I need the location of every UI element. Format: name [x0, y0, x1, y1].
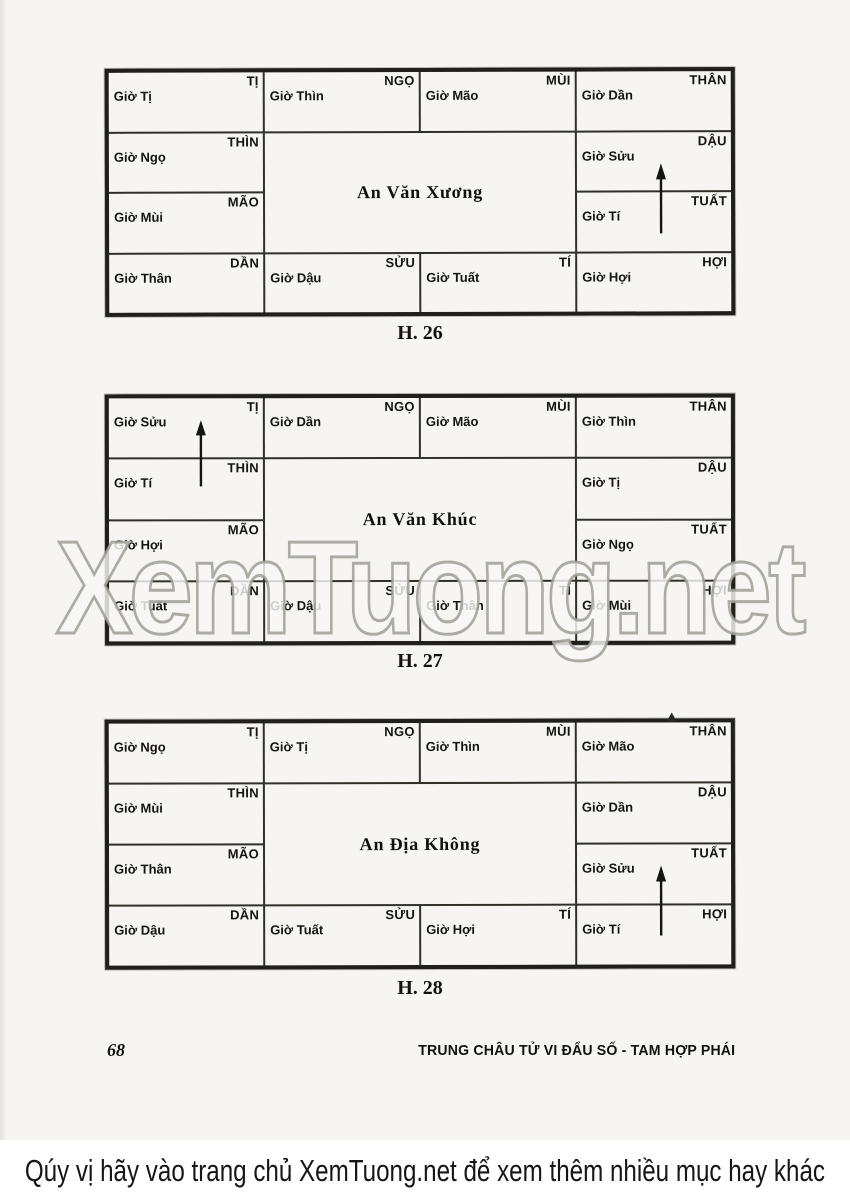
- palace-cell: DẦN Giờ Thân: [109, 254, 263, 313]
- palace-branch-label: MÃO: [228, 522, 259, 537]
- palace-branch-label: TUẤT: [691, 193, 727, 208]
- palace-branch-label: HỢI: [702, 254, 727, 269]
- chart-h26: TỊ Giờ Tị NGỌ Giờ Thìn MÙI Giờ Mão THÂN …: [105, 67, 736, 317]
- palace-branch-label: THÌN: [227, 134, 259, 149]
- palace-branch-label: HỢI: [702, 906, 727, 921]
- palace-cell: THÂN Giờ Dần: [577, 71, 731, 130]
- palace-cell: MÃO Giờ Thân: [109, 845, 263, 904]
- hour-label: Giờ Dần: [270, 414, 321, 429]
- figure-caption: H. 27: [105, 650, 735, 673]
- palace-branch-label: SỬU: [385, 255, 415, 270]
- palace-cell: TÍ Giờ Thân: [421, 582, 575, 641]
- hour-label: Giờ Thìn: [426, 739, 480, 754]
- palace-cell: MÙI Giờ Mão: [421, 72, 575, 131]
- hour-label: Giờ Tị: [114, 89, 152, 104]
- palace-cell: MÙI Giờ Mão: [421, 398, 575, 457]
- palace-cell: HỢI Giờ Hợi: [577, 253, 731, 312]
- hour-label: Giờ Dậu: [114, 923, 165, 938]
- chart-h28: TỊ Giờ Ngọ NGỌ Giờ Tị MÙI Giờ Thìn THÂN …: [105, 718, 736, 969]
- chart-h27: TỊ Giờ Sửu NGỌ Giờ Dần MÙI Giờ Mão THÂN …: [105, 394, 735, 646]
- palace-cell: THÂN Giờ Thìn: [577, 398, 731, 457]
- hour-label: Giờ Thìn: [582, 414, 636, 429]
- chart-center-cell: An Văn Xương: [265, 132, 575, 252]
- palace-cell: DẦN Giờ Dậu: [109, 906, 263, 965]
- up-arrow-icon: [194, 420, 208, 488]
- palace-cell: THÌN Giờ Tí: [109, 459, 263, 518]
- hour-label: Giờ Tí: [114, 476, 152, 491]
- banner-text: Qúy vị hãy vào trang chủ XemTuong.net để…: [25, 1153, 825, 1189]
- palace-cell: MÙI Giờ Thìn: [421, 723, 575, 782]
- palace-branch-label: MÃO: [228, 846, 259, 861]
- chart-center-cell: An Địa Không: [265, 784, 575, 905]
- palace-branch-label: TỊ: [247, 724, 259, 739]
- hour-label: Giờ Tí: [582, 922, 620, 937]
- hour-label: Giờ Dần: [582, 800, 633, 815]
- hour-label: Giờ Tuất: [426, 269, 479, 284]
- palace-branch-label: TÍ: [559, 254, 571, 269]
- hour-label: Giờ Hợi: [114, 537, 163, 552]
- palace-cell: THÌN Giờ Ngọ: [109, 133, 263, 192]
- hour-label: Giờ Mão: [582, 739, 635, 754]
- figure-caption: H. 28: [105, 977, 735, 1000]
- palace-branch-label: DẬU: [698, 784, 727, 799]
- hour-label: Giờ Thìn: [270, 88, 324, 103]
- hour-label: Giờ Mùi: [114, 210, 163, 225]
- palace-branch-label: TÍ: [559, 907, 571, 922]
- palace-cell: SỬU Giờ Dậu: [265, 254, 419, 313]
- palace-branch-label: TUẤT: [691, 845, 727, 860]
- figure-caption: H. 26: [105, 322, 735, 345]
- hour-label: Giờ Thân: [114, 270, 172, 285]
- palace-branch-label: MÃO: [228, 194, 259, 209]
- hour-label: Giờ Hợi: [582, 269, 631, 284]
- running-title: TRUNG CHÂU TỬ VI ĐẨU SỐ - TAM HỢP PHÁI: [418, 1042, 735, 1059]
- palace-cell: MÃO Giờ Mùi: [109, 193, 263, 252]
- palace-cell: TỊ Giờ Ngọ: [109, 723, 263, 782]
- hour-label: Giờ Sửu: [582, 148, 635, 163]
- hour-label: Giờ Sửu: [582, 861, 635, 876]
- palace-cell: SỬU Giờ Tuất: [265, 906, 419, 965]
- hour-label: Giờ Ngọ: [114, 740, 166, 755]
- hour-label: Giờ Mùi: [582, 597, 631, 612]
- palace-cell: TỊ Giờ Sửu: [109, 398, 263, 457]
- palace-cell: TỊ Giờ Tị: [109, 72, 263, 131]
- palace-cell: DẬU Giờ Tị: [577, 459, 731, 518]
- palace-branch-label: SỬU: [385, 907, 415, 922]
- palace-cell: DẬU Giờ Dần: [577, 783, 731, 842]
- hour-label: Giờ Hợi: [426, 922, 475, 937]
- hour-label: Giờ Tuất: [270, 922, 323, 937]
- palace-branch-label: MÙI: [546, 73, 571, 88]
- hour-label: Giờ Ngọ: [582, 536, 634, 551]
- palace-cell: NGỌ Giờ Thìn: [265, 72, 419, 131]
- palace-cell: SỬU Giờ Dậu: [265, 582, 419, 641]
- palace-branch-label: HỢI: [702, 582, 727, 597]
- hour-label: Giờ Mùi: [114, 801, 163, 816]
- page-number: 68: [107, 1040, 125, 1061]
- palace-branch-label: TÍ: [559, 583, 571, 598]
- palace-cell: NGỌ Giờ Tị: [265, 723, 419, 782]
- stray-arrowhead-mark: [667, 712, 677, 721]
- palace-branch-label: THÂN: [690, 399, 727, 414]
- hour-label: Giờ Tị: [582, 475, 620, 490]
- hour-label: Giờ Tí: [582, 208, 620, 223]
- hour-label: Giờ Dần: [582, 87, 633, 102]
- chart-title: An Văn Xương: [357, 181, 483, 202]
- hour-label: Giờ Sửu: [114, 414, 167, 429]
- chart-title: An Địa Không: [360, 833, 481, 854]
- hour-label: Giờ Thân: [114, 862, 172, 877]
- hour-label: Giờ Mão: [426, 88, 479, 103]
- palace-cell: TÍ Giờ Hợi: [421, 906, 575, 965]
- hour-label: Giờ Dậu: [270, 270, 321, 285]
- palace-cell: THÂN Giờ Mão: [577, 722, 731, 781]
- palace-branch-label: DẦN: [230, 255, 259, 270]
- palace-cell: TUẤT Giờ Ngọ: [577, 520, 731, 579]
- palace-branch-label: SỬU: [385, 583, 415, 598]
- palace-branch-label: NGỌ: [384, 399, 415, 414]
- hour-label: Giờ Thân: [426, 598, 484, 613]
- palace-branch-label: DẬU: [698, 460, 727, 475]
- palace-branch-label: NGỌ: [384, 724, 415, 739]
- up-arrow-icon: [654, 163, 668, 235]
- palace-cell: DẦN Giờ Tuất: [109, 582, 263, 641]
- palace-branch-label: DẬU: [698, 133, 727, 148]
- palace-branch-label: TỊ: [247, 73, 259, 88]
- chart-title: An Văn Khúc: [363, 509, 478, 530]
- palace-cell: HỢI Giờ Mùi: [577, 581, 731, 640]
- palace-branch-label: THÌN: [227, 460, 259, 475]
- up-arrow-icon: [654, 865, 668, 937]
- scanned-book-page: TỊ Giờ Tị NGỌ Giờ Thìn MÙI Giờ Mão THÂN …: [0, 0, 850, 1202]
- palace-branch-label: DẦN: [230, 907, 259, 922]
- palace-branch-label: TUẤT: [691, 521, 727, 536]
- hour-label: Giờ Ngọ: [114, 149, 166, 164]
- palace-branch-label: NGỌ: [384, 73, 415, 88]
- hour-label: Giờ Tuất: [114, 598, 167, 613]
- palace-branch-label: DẦN: [230, 583, 259, 598]
- palace-branch-label: THÂN: [689, 723, 726, 738]
- palace-branch-label: MÙI: [546, 399, 571, 414]
- palace-cell: TÍ Giờ Tuất: [421, 253, 575, 312]
- chart-center-cell: An Văn Khúc: [265, 459, 575, 580]
- hour-label: Giờ Mão: [426, 414, 479, 429]
- palace-cell: MÃO Giờ Hợi: [109, 521, 263, 580]
- palace-branch-label: MÙI: [546, 724, 571, 739]
- bottom-banner: Qúy vị hãy vào trang chủ XemTuong.net để…: [0, 1140, 850, 1202]
- palace-cell: NGỌ Giờ Dần: [265, 398, 419, 457]
- hour-label: Giờ Tị: [270, 739, 308, 754]
- palace-cell: THÌN Giờ Mùi: [109, 784, 263, 843]
- palace-branch-label: TỊ: [247, 399, 259, 414]
- hour-label: Giờ Dậu: [270, 598, 321, 613]
- palace-branch-label: THÌN: [227, 785, 259, 800]
- palace-branch-label: THÂN: [689, 72, 726, 87]
